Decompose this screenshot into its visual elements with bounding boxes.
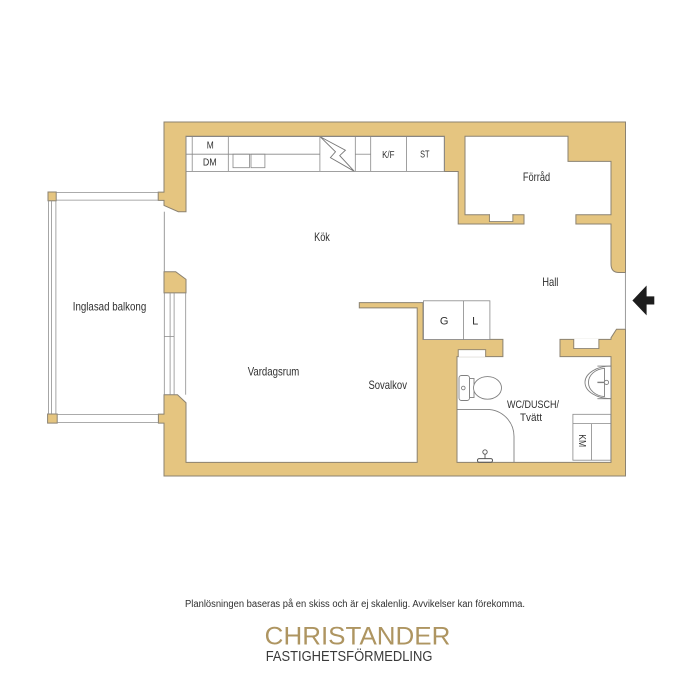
svg-text:CHRISTANDER: CHRISTANDER: [265, 623, 451, 651]
svg-text:FASTIGHETSFÖRMEDLING: FASTIGHETSFÖRMEDLING: [266, 647, 433, 665]
svg-text:M: M: [207, 140, 214, 151]
svg-text:K/F: K/F: [382, 150, 394, 161]
svg-text:Hall: Hall: [542, 275, 558, 289]
svg-text:KM: KM: [576, 434, 587, 447]
svg-text:Vardagsrum: Vardagsrum: [248, 364, 300, 378]
svg-text:Sovalkov: Sovalkov: [368, 378, 407, 392]
svg-text:Planlösningen baseras på en sk: Planlösningen baseras på en skiss och är…: [185, 598, 525, 610]
svg-text:L: L: [472, 316, 478, 328]
svg-text:G: G: [440, 316, 449, 328]
svg-text:Förråd: Förråd: [523, 170, 550, 184]
svg-text:Tvätt: Tvätt: [520, 412, 542, 424]
svg-text:Kök: Kök: [314, 230, 331, 244]
svg-text:Inglasad balkong: Inglasad balkong: [73, 300, 147, 314]
svg-text:WC/DUSCH/: WC/DUSCH/: [507, 399, 560, 411]
svg-text:ST: ST: [420, 149, 429, 160]
svg-text:DM: DM: [203, 158, 217, 169]
